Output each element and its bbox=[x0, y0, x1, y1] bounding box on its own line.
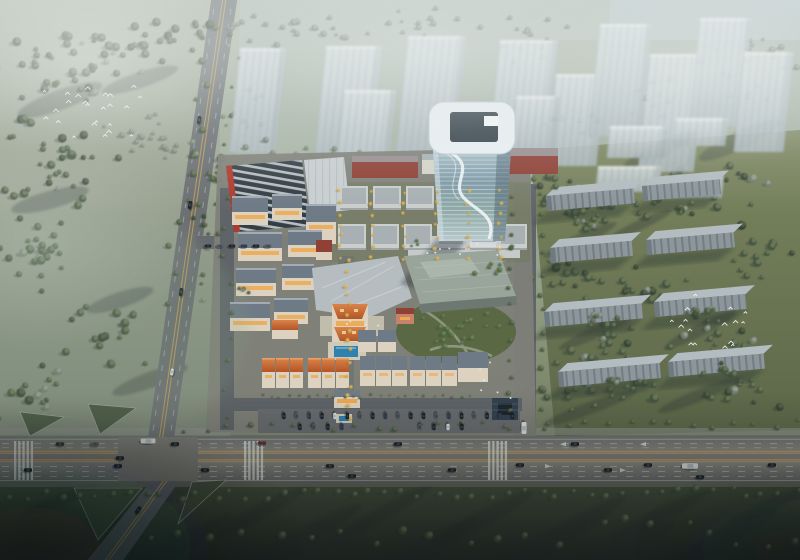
masterplan-scene bbox=[0, 0, 800, 560]
fog-overlays bbox=[0, 0, 800, 560]
aerial-render bbox=[0, 0, 800, 560]
